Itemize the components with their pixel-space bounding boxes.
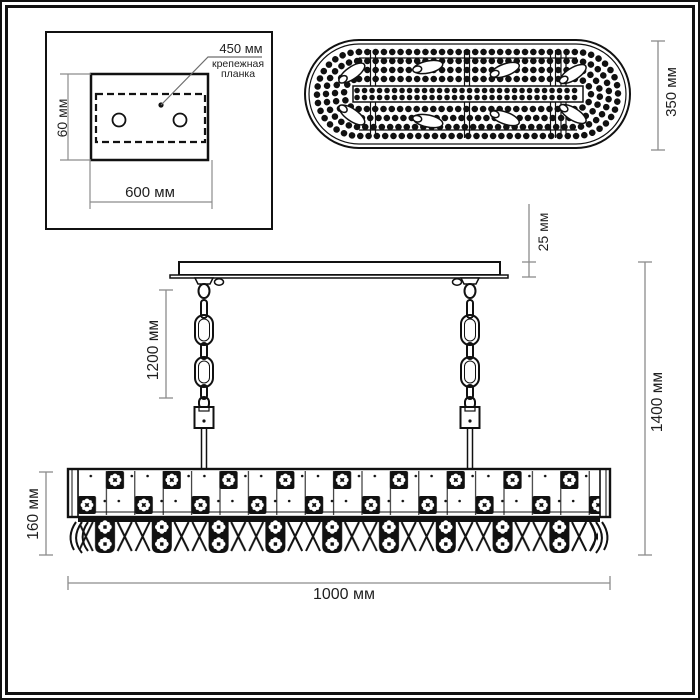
screw-hole-left	[113, 114, 126, 127]
top-view-depth-label: 350 мм	[663, 52, 679, 132]
plate-height-label: 60 мм	[54, 81, 70, 155]
chain-right	[461, 278, 480, 470]
chain-left	[195, 278, 214, 470]
body-upper-tier	[68, 469, 610, 517]
bracket-label-line2: планка	[204, 69, 272, 79]
centre-bead-bar	[353, 86, 583, 102]
chandelier-dimension-sheet: 450 мм крепежная планка 60 мм 600 мм	[0, 0, 700, 700]
body-height-label: 160 мм	[25, 474, 43, 554]
body-crystal-fringe	[70, 517, 607, 555]
canopy-thickness-label: 25 мм	[535, 197, 551, 267]
chain-length-label: 1200 мм	[145, 305, 163, 395]
canopy-plate-outline	[91, 74, 208, 160]
ceiling-canopy	[170, 262, 508, 285]
front-view-drawing	[20, 195, 680, 615]
overall-height-label: 1400 мм	[649, 357, 667, 447]
hole-spacing-label: 450 мм	[213, 42, 269, 55]
top-view-drawing	[295, 28, 685, 163]
overall-width-label: 1000 мм	[294, 586, 394, 604]
screw-hole-right	[174, 114, 187, 127]
